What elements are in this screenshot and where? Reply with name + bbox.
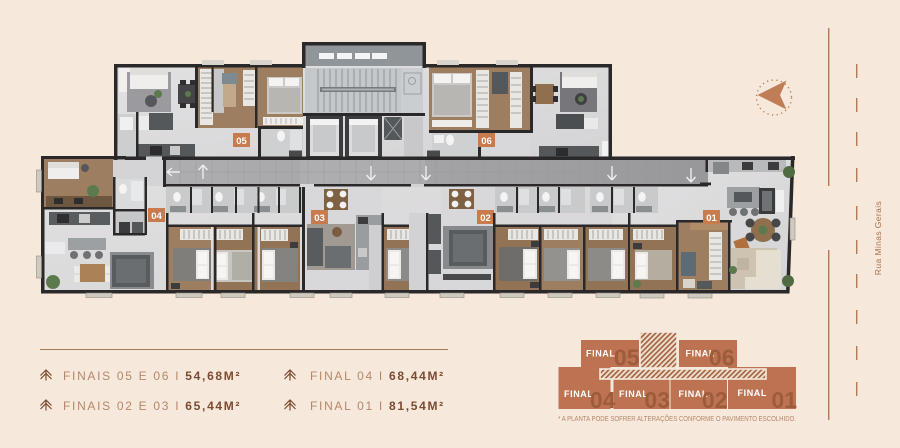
svg-text:06: 06 — [481, 136, 492, 147]
svg-text:Rua Minas Gerais: Rua Minas Gerais — [873, 201, 883, 275]
svg-text:FINAIS 05 E 06 I 54,68M²: FINAIS 05 E 06 I 54,68M² — [63, 369, 241, 383]
svg-text:* A PLANTA PODE SOFRER ALTERAÇ: * A PLANTA PODE SOFRER ALTERAÇÕES CONFOR… — [558, 414, 796, 423]
svg-text:FINAL: FINAL — [738, 388, 768, 398]
svg-text:FINAL: FINAL — [586, 349, 616, 359]
svg-text:FINAL 01 I 81,54M²: FINAL 01 I 81,54M² — [310, 399, 445, 413]
svg-text:02: 02 — [702, 387, 728, 413]
svg-text:03: 03 — [314, 213, 325, 224]
svg-text:FINAIS 02 E 03 I 65,44M²: FINAIS 02 E 03 I 65,44M² — [63, 399, 241, 413]
svg-text:04: 04 — [151, 211, 162, 222]
svg-text:FINAL 04 I 68,44M²: FINAL 04 I 68,44M² — [310, 369, 445, 383]
svg-text:01: 01 — [771, 387, 797, 413]
svg-text:01: 01 — [706, 213, 717, 224]
svg-text:05: 05 — [614, 345, 640, 371]
svg-text:03: 03 — [644, 387, 670, 413]
svg-text:05: 05 — [236, 136, 247, 147]
svg-text:04: 04 — [590, 387, 616, 413]
svg-text:02: 02 — [480, 213, 491, 224]
svg-text:06: 06 — [709, 345, 735, 371]
